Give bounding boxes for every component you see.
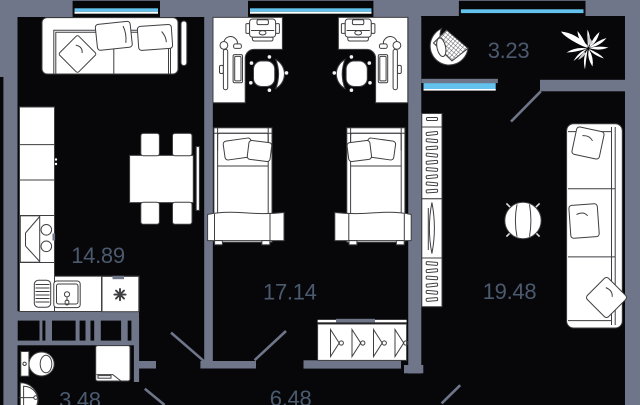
svg-text:19.48: 19.48 xyxy=(483,279,537,304)
svg-text:17.14: 17.14 xyxy=(263,280,317,305)
svg-text:14.89: 14.89 xyxy=(71,243,125,268)
svg-text:3.48: 3.48 xyxy=(59,387,101,405)
svg-text:3.23: 3.23 xyxy=(488,38,530,63)
svg-text:6.48: 6.48 xyxy=(270,386,312,405)
